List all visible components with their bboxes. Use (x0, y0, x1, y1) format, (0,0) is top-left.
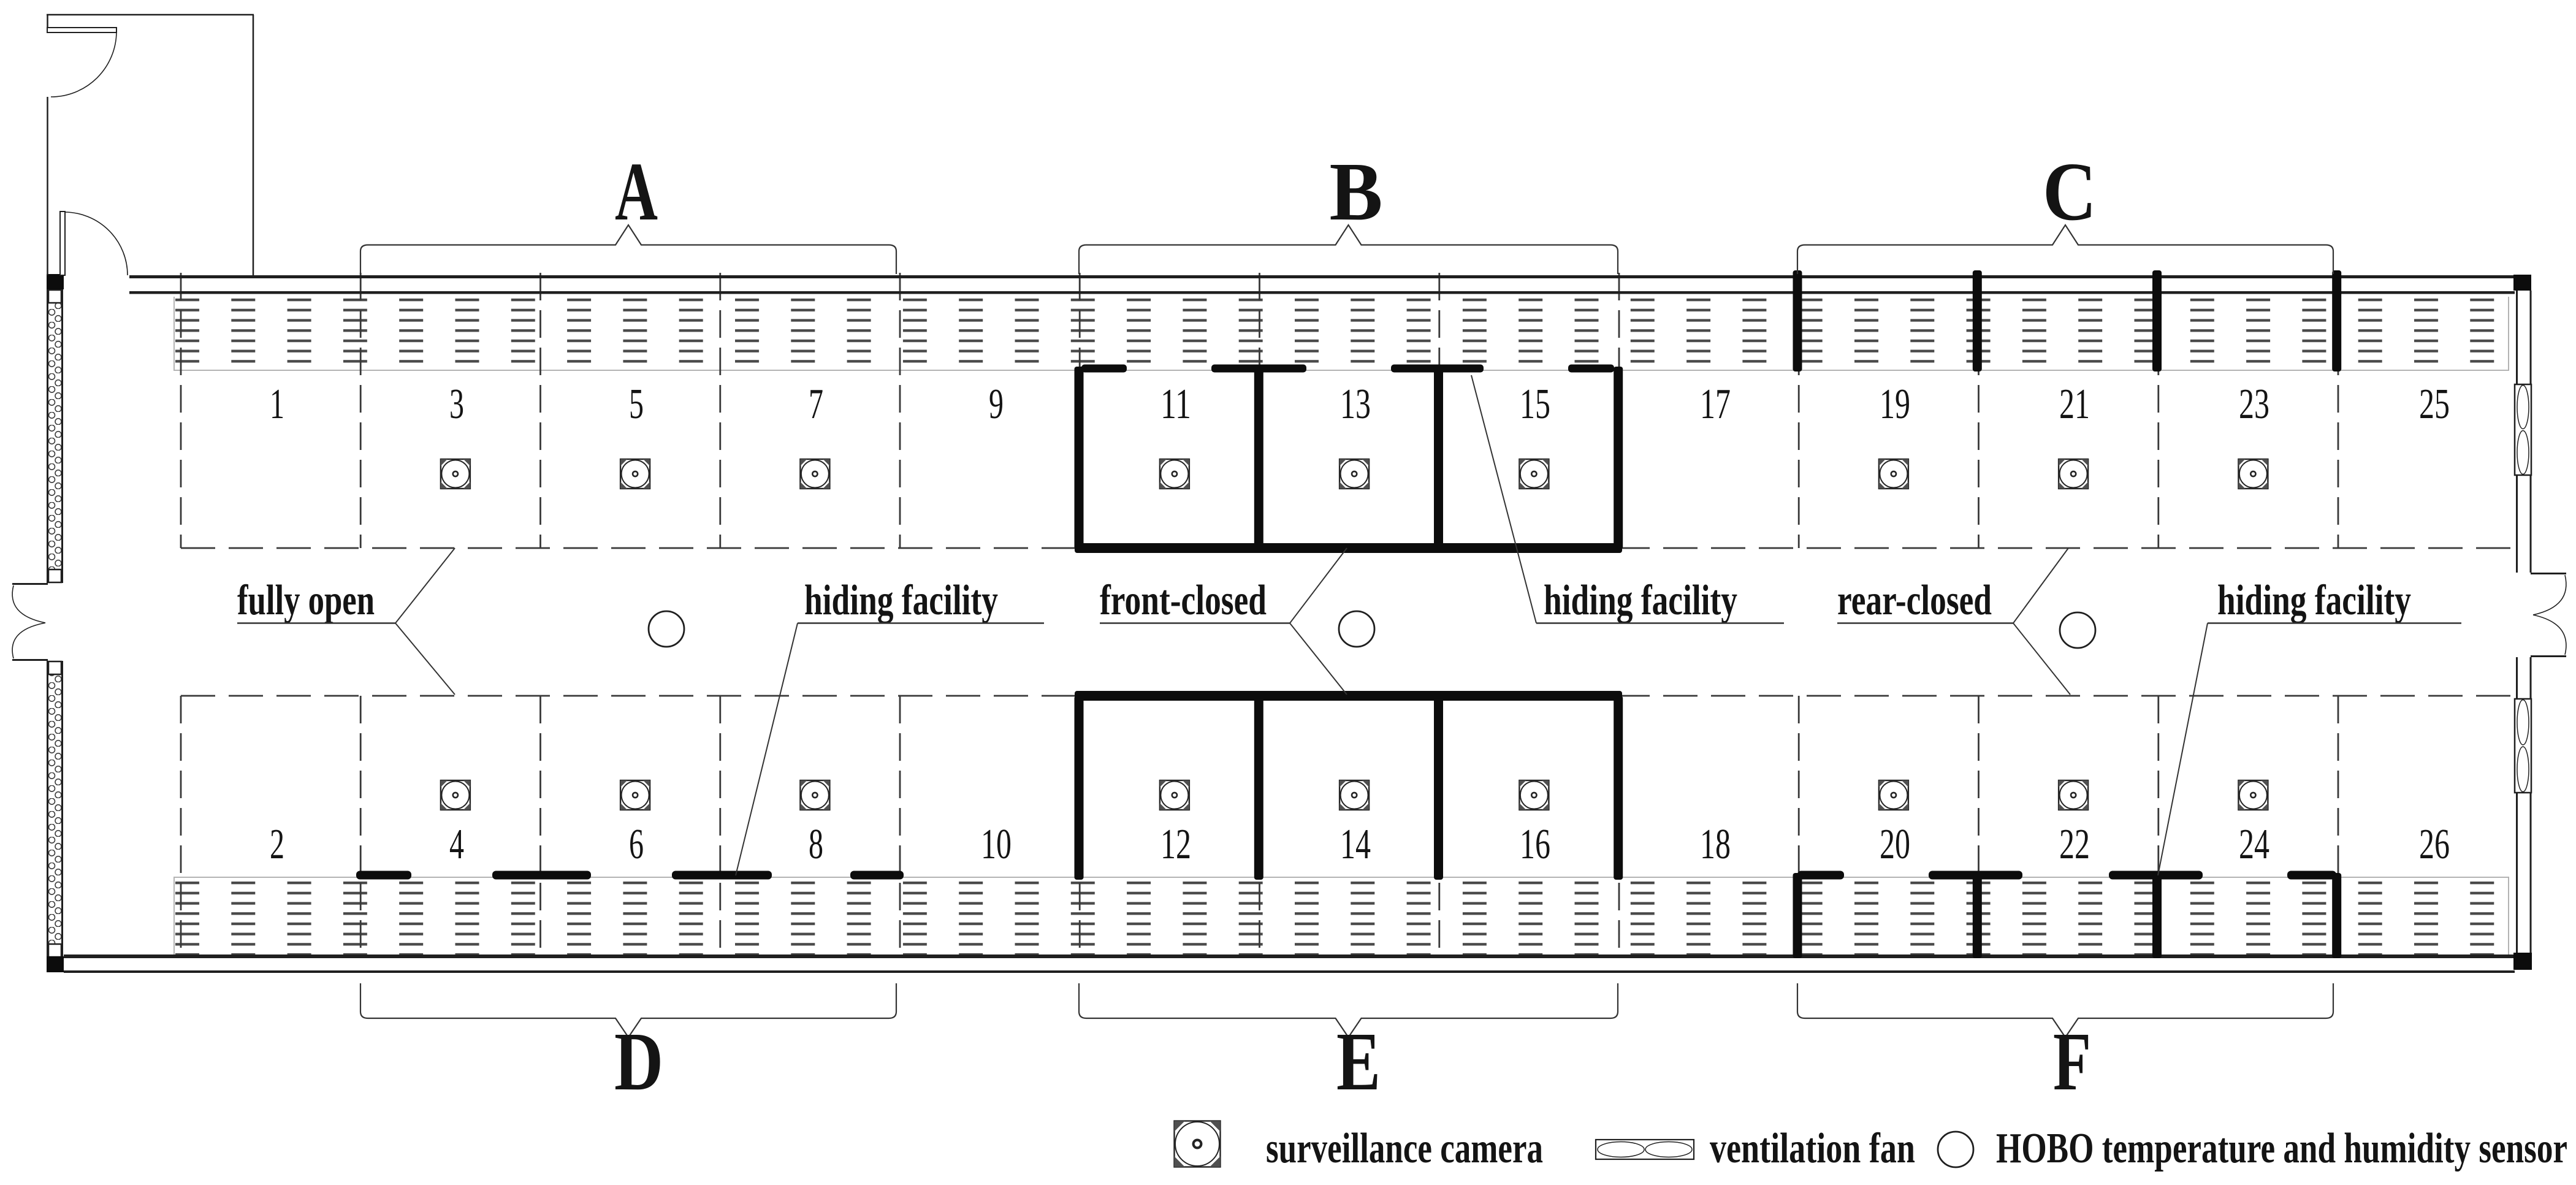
svg-text:22: 22 (2059, 821, 2090, 868)
svg-text:21: 21 (2059, 381, 2090, 428)
svg-text:C: C (2043, 146, 2097, 238)
svg-text:10: 10 (981, 821, 1012, 868)
svg-text:9: 9 (989, 381, 1004, 428)
svg-text:D: D (614, 1016, 663, 1108)
svg-text:fully open: fully open (237, 577, 375, 624)
svg-text:E: E (1336, 1016, 1381, 1108)
svg-text:surveillance camera: surveillance camera (1266, 1125, 1543, 1172)
svg-text:23: 23 (2239, 381, 2269, 428)
svg-text:ventilation fan: ventilation fan (1710, 1125, 1915, 1172)
svg-text:12: 12 (1160, 821, 1191, 868)
svg-text:19: 19 (1880, 381, 1910, 428)
svg-text:4: 4 (449, 821, 464, 868)
svg-text:17: 17 (1700, 381, 1731, 428)
svg-text:20: 20 (1880, 821, 1910, 868)
svg-text:hiding facility: hiding facility (2217, 577, 2411, 624)
svg-text:HOBO temperature and humidity: HOBO temperature and humidity sensor (1996, 1125, 2567, 1172)
svg-text:1: 1 (270, 381, 284, 428)
svg-text:hiding facility: hiding facility (1544, 577, 1737, 624)
svg-text:5: 5 (629, 381, 644, 428)
svg-text:25: 25 (2419, 381, 2450, 428)
svg-text:F: F (2053, 1016, 2091, 1108)
svg-text:front-closed: front-closed (1100, 577, 1267, 624)
svg-text:14: 14 (1340, 821, 1371, 868)
svg-text:2: 2 (270, 821, 284, 868)
svg-text:6: 6 (629, 821, 644, 868)
svg-text:16: 16 (1520, 821, 1550, 868)
svg-text:13: 13 (1340, 381, 1371, 428)
svg-text:8: 8 (809, 821, 823, 868)
svg-text:3: 3 (449, 381, 464, 428)
svg-text:hiding facility: hiding facility (804, 577, 998, 624)
svg-text:11: 11 (1160, 381, 1191, 428)
svg-text:A: A (615, 146, 658, 238)
svg-text:B: B (1330, 146, 1383, 238)
svg-text:24: 24 (2239, 821, 2269, 868)
svg-text:26: 26 (2419, 821, 2450, 868)
svg-text:15: 15 (1520, 381, 1550, 428)
svg-text:18: 18 (1700, 821, 1731, 868)
svg-text:7: 7 (809, 381, 823, 428)
svg-text:rear-closed: rear-closed (1837, 577, 1992, 624)
